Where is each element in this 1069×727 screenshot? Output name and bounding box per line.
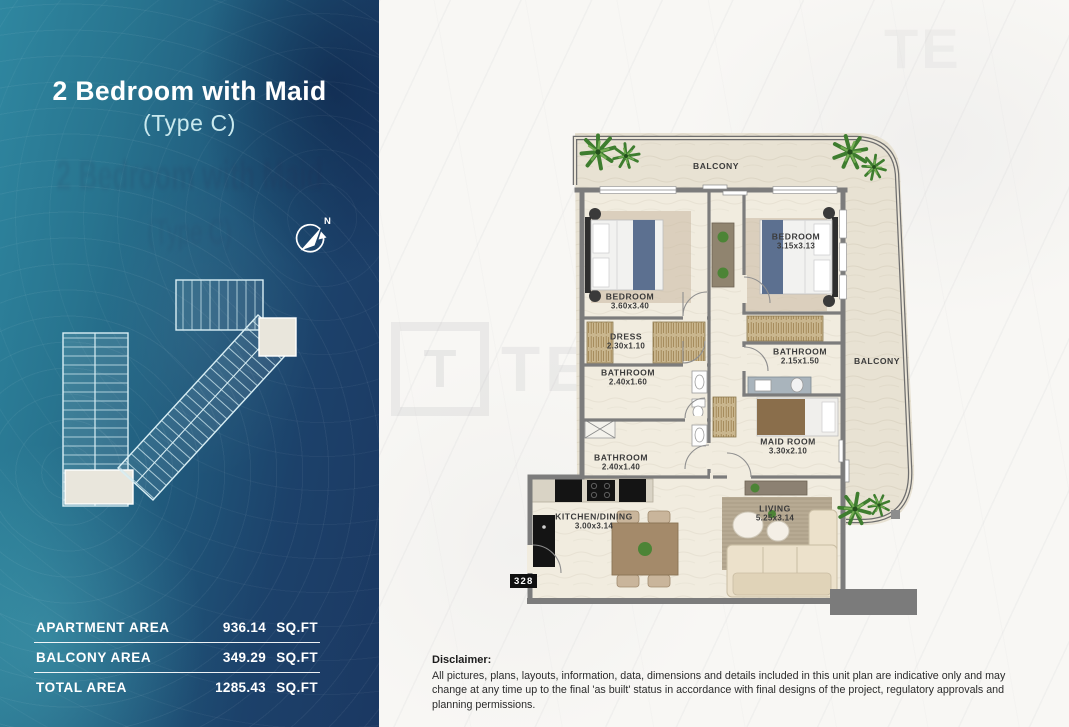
room-label-dress: DRESS2.30x1.10 (607, 333, 645, 352)
room-label-bathroom-right: BATHROOM2.15x1.50 (773, 348, 827, 367)
compass-icon: N (290, 212, 338, 264)
flyer: 2 Bedroom with Maid (Type C) 2 Bedroom w… (0, 0, 1069, 727)
plan-sheet: TE T TEKCE (379, 0, 1069, 727)
keyplan-highlight-unit-top (259, 318, 296, 356)
room-label-maid-room: MAID ROOM3.30x2.10 (760, 438, 816, 457)
balcony-drain (891, 510, 900, 519)
room-label-bedroom-left: BEDROOM3.60x3.40 (606, 293, 654, 312)
left-panel: 2 Bedroom with Maid (Type C) 2 Bedroom w… (0, 0, 381, 727)
stat-value: 936.14 (200, 620, 266, 635)
watermark-logo: T (391, 322, 489, 416)
disclaimer-title: Disclaimer: (432, 654, 1032, 666)
stat-value: 1285.43 (200, 680, 266, 695)
maid-wardrobe (713, 397, 736, 437)
title-block: 2 Bedroom with Maid (Type C) (0, 76, 379, 137)
maid-bed (757, 398, 838, 436)
room-label-bedroom-right: BEDROOM3.15x3.13 (772, 233, 820, 252)
page-subtitle: (Type C) (0, 110, 379, 137)
stat-unit: SQ.FT (266, 680, 318, 695)
corridor-console (712, 223, 734, 287)
stat-label: TOTAL AREA (36, 680, 200, 695)
stat-row-apartment: APARTMENT AREA 936.14 SQ.FT (34, 613, 320, 642)
disclaimer-text: All pictures, plans, layouts, informatio… (432, 669, 1032, 712)
bottom-band (830, 589, 917, 615)
stat-unit: SQ.FT (266, 650, 318, 665)
bed-right (760, 207, 838, 307)
area-stats: APARTMENT AREA 936.14 SQ.FT BALCONY AREA… (34, 613, 320, 702)
room-label-bathroom-lower: BATHROOM2.40x1.40 (594, 454, 648, 473)
stat-label: APARTMENT AREA (36, 620, 200, 635)
room-label-living: LIVING5.25x3.14 (756, 505, 794, 524)
stat-row-balcony: BALCONY AREA 349.29 SQ.FT (34, 642, 320, 672)
keyplan-left-wing (63, 333, 133, 506)
stat-value: 349.29 (200, 650, 266, 665)
stat-row-total: TOTAL AREA 1285.43 SQ.FT (34, 672, 320, 702)
floor-plan-drawing (505, 125, 935, 625)
bed-left (585, 208, 663, 302)
stat-label: BALCONY AREA (36, 650, 200, 665)
page-title: 2 Bedroom with Maid (0, 76, 379, 107)
floor-plan: BALCONY BEDROOM3.60x3.40 BEDROOM3.15x3.1… (505, 125, 935, 625)
stat-unit: SQ.FT (266, 620, 318, 635)
keyplan-highlight-unit-bottom (65, 470, 133, 504)
room-label-balcony-right: BALCONY (854, 357, 900, 367)
room-label-balcony-top: BALCONY (693, 162, 739, 172)
unit-number-badge: 328 (510, 574, 537, 588)
disclaimer: Disclaimer: All pictures, plans, layouts… (432, 654, 1032, 712)
dress-wardrobe-right (653, 322, 705, 363)
compass-north-label: N (324, 216, 331, 227)
watermark-corner: TE (884, 16, 962, 81)
room-label-bathroom-upper: BATHROOM2.40x1.60 (601, 369, 655, 388)
bedroom-right-wardrobe (747, 316, 823, 341)
room-label-kitchen-dining: KITCHEN/DINING3.00x3.14 (555, 513, 633, 532)
building-key-plan (38, 238, 320, 528)
